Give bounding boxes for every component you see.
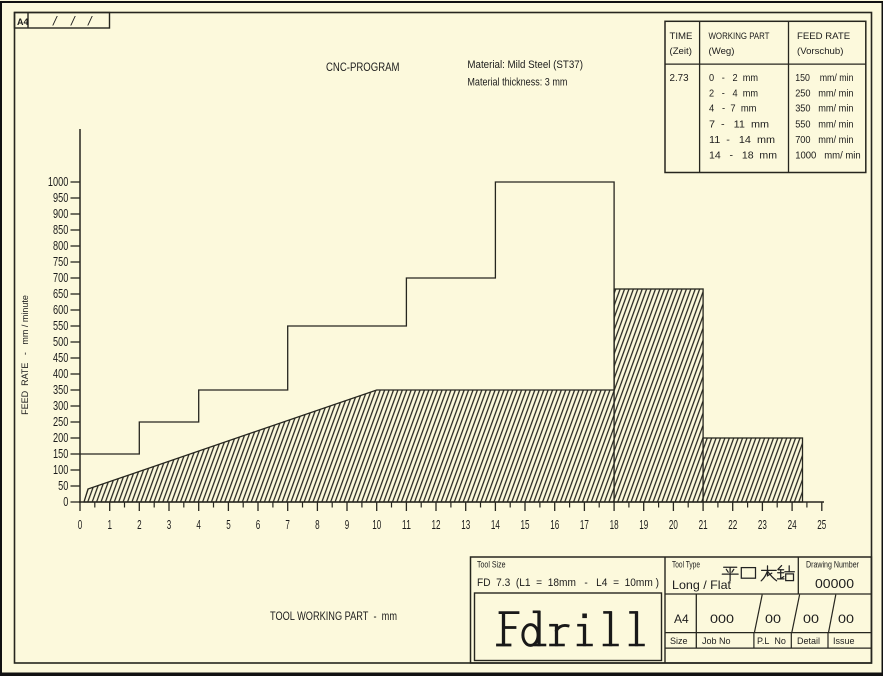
svg-text:CNC-PROGRAM: CNC-PROGRAM: [326, 60, 400, 74]
svg-text:WORKING PART: WORKING PART: [709, 31, 770, 42]
svg-text:650: 650: [53, 286, 68, 301]
svg-text:1000 mm/ min: 1000 mm/ min: [795, 151, 861, 162]
svg-text:FD 7.3 (L1 = 18mm - L4: FD 7.3 (L1 = 18mm - L4 = 10mm ): [477, 577, 659, 589]
svg-text:17: 17: [580, 517, 589, 532]
svg-text:600: 600: [53, 302, 68, 317]
svg-text:Tool Type: Tool Type: [672, 560, 700, 570]
svg-text:9: 9: [345, 517, 350, 532]
svg-text:A4: A4: [674, 612, 689, 626]
svg-text:(Weg): (Weg): [709, 46, 735, 57]
svg-text:24: 24: [788, 517, 797, 532]
svg-text:550: 550: [53, 318, 68, 333]
svg-text:450: 450: [53, 350, 68, 365]
svg-text:14 - 18 mm: 14 - 18 mm: [709, 151, 777, 162]
svg-text:0 - 2 mm: 0 - 2 mm: [709, 73, 758, 84]
svg-text:1000: 1000: [48, 174, 68, 189]
svg-text:7: 7: [285, 517, 290, 532]
svg-text:P.L No: P.L No: [757, 636, 786, 646]
svg-text:Issue: Issue: [833, 636, 855, 646]
svg-text:Material thickness: 3 mm: Material thickness: 3 mm: [467, 77, 567, 89]
svg-text:000: 000: [710, 612, 734, 626]
svg-text:16: 16: [550, 517, 559, 532]
svg-text:4: 4: [196, 517, 201, 532]
svg-text:1: 1: [108, 517, 113, 532]
svg-text:Detail: Detail: [797, 636, 820, 646]
svg-text:Job No: Job No: [702, 636, 731, 646]
svg-text:23: 23: [758, 517, 767, 532]
svg-text:Tool Size: Tool Size: [477, 560, 506, 570]
svg-text:11: 11: [402, 517, 411, 532]
svg-text:300: 300: [53, 398, 68, 413]
svg-text:13: 13: [461, 517, 470, 532]
svg-text:00: 00: [803, 612, 819, 626]
svg-text:Material: Mild Steel (ST37): Material: Mild Steel (ST37): [467, 59, 583, 71]
svg-text:150 mm/ min: 150 mm/ min: [795, 73, 853, 84]
svg-text:(Vorschub): (Vorschub): [797, 46, 843, 57]
svg-text:350: 350: [53, 382, 68, 397]
svg-text:2.73: 2.73: [670, 73, 690, 84]
svg-text:14: 14: [491, 517, 500, 532]
svg-text:25: 25: [817, 517, 826, 532]
svg-text:2 - 4 mm: 2 - 4 mm: [709, 89, 758, 100]
svg-text:200: 200: [53, 430, 68, 445]
svg-text:00000: 00000: [815, 577, 854, 591]
svg-text:250 mm/ min: 250 mm/ min: [795, 89, 853, 100]
svg-text:FEED RATE - mm / minute: FEED RATE - mm / minute: [20, 295, 30, 415]
svg-text:750: 750: [53, 254, 68, 269]
svg-text:TIME: TIME: [670, 31, 693, 42]
svg-text:350 mm/ min: 350 mm/ min: [795, 104, 853, 115]
svg-text:7 - 11 mm: 7 - 11 mm: [709, 120, 769, 131]
svg-text:18: 18: [610, 517, 619, 532]
svg-text:15: 15: [521, 517, 530, 532]
svg-text:(Zeit): (Zeit): [670, 46, 692, 57]
svg-text:00: 00: [838, 612, 854, 626]
svg-text:0: 0: [78, 517, 83, 532]
svg-text:4 - 7 mm: 4 - 7 mm: [709, 104, 757, 115]
svg-text:250: 250: [53, 414, 68, 429]
svg-text:Size: Size: [670, 636, 688, 646]
svg-text:700 mm/ min: 700 mm/ min: [795, 135, 853, 146]
svg-text:00: 00: [765, 612, 781, 626]
svg-text:3: 3: [167, 517, 172, 532]
svg-text:21: 21: [699, 517, 708, 532]
svg-text:22: 22: [728, 517, 737, 532]
svg-text:700: 700: [53, 270, 68, 285]
svg-text:2: 2: [137, 517, 142, 532]
svg-text:20: 20: [669, 517, 678, 532]
svg-text:12: 12: [432, 517, 441, 532]
svg-text:Drawing Number: Drawing Number: [806, 560, 859, 570]
svg-text:6: 6: [256, 517, 260, 532]
svg-text:950: 950: [53, 190, 68, 205]
svg-text:10: 10: [372, 517, 381, 532]
svg-text:550 mm/ min: 550 mm/ min: [795, 120, 853, 131]
svg-text:400: 400: [53, 366, 68, 381]
svg-text:Long / Flat: Long / Flat: [672, 578, 732, 592]
svg-text:100: 100: [53, 462, 68, 477]
svg-text:0: 0: [63, 494, 68, 509]
svg-text:150: 150: [53, 446, 68, 461]
svg-text:A4: A4: [17, 17, 29, 27]
svg-text:19: 19: [639, 517, 648, 532]
svg-text:FEED RATE: FEED RATE: [797, 31, 850, 42]
svg-text:500: 500: [53, 334, 68, 349]
svg-text:800: 800: [53, 238, 68, 253]
svg-text:850: 850: [53, 222, 68, 237]
svg-text:8: 8: [315, 517, 320, 532]
svg-text:TOOL WORKING PART - mm: TOOL WORKING PART - mm: [270, 611, 397, 623]
svg-text:900: 900: [53, 206, 68, 221]
svg-text:5: 5: [226, 517, 231, 532]
svg-text:11 - 14 mm: 11 - 14 mm: [709, 135, 775, 146]
svg-text:50: 50: [58, 478, 68, 493]
